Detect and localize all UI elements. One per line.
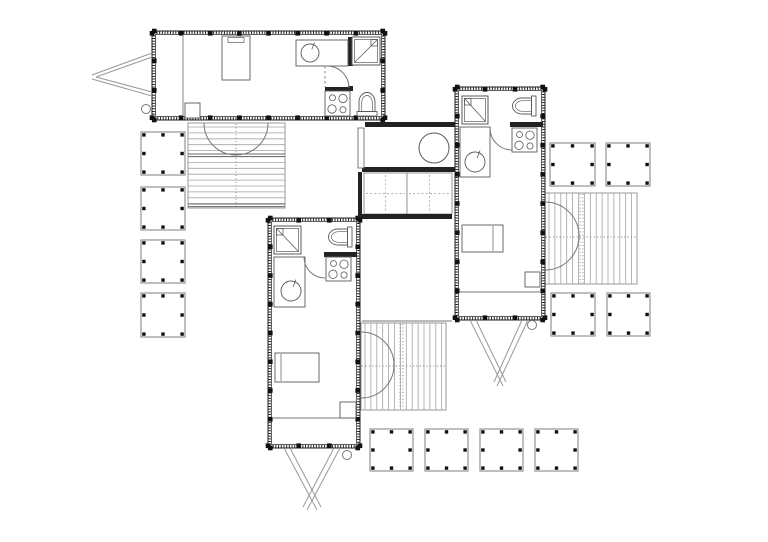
storage-box-top-unit <box>185 103 200 118</box>
floor-plan-svg <box>0 0 768 542</box>
foundation-pad <box>607 293 650 336</box>
foundation-pad <box>551 293 595 336</box>
stove-right-unit <box>512 128 537 152</box>
bed-right-unit <box>462 225 503 252</box>
foundation-pad <box>535 429 578 471</box>
foundation-pad <box>606 143 650 186</box>
foundation-pad <box>425 429 468 471</box>
storage-box-bottom-unit <box>340 402 356 418</box>
interior-wall <box>365 122 455 127</box>
kitchen-counter-bottom-unit <box>274 257 305 307</box>
interior-wall <box>358 172 362 218</box>
kitchen-counter-right-unit <box>460 127 490 177</box>
foundation-pad <box>550 143 595 186</box>
foundation-pad <box>370 429 413 471</box>
shower-right-unit <box>462 96 488 124</box>
bed-top-unit <box>222 36 250 80</box>
stove-top-unit <box>325 91 350 116</box>
foundation-pad <box>141 240 185 283</box>
interior-wall <box>324 252 357 257</box>
link-floor-panel <box>407 173 452 214</box>
link-floor-panel <box>364 173 407 214</box>
deck-top <box>188 123 285 208</box>
foundation-pad <box>480 429 523 471</box>
shower-bottom-unit <box>274 226 301 254</box>
stove-bottom-unit <box>326 257 351 281</box>
foundation-pad <box>141 132 185 175</box>
deck-right <box>545 193 637 284</box>
shower-top-unit <box>352 37 380 65</box>
foundation-pad <box>141 293 185 337</box>
deck-middle <box>361 323 446 410</box>
foundation-pad <box>141 187 185 230</box>
storage-box-right-unit <box>525 272 540 287</box>
interior-wall <box>362 214 452 219</box>
interior-wall <box>510 122 543 127</box>
floor-plan-canvas <box>0 0 768 542</box>
interior-wall <box>362 167 455 172</box>
round-table-link <box>419 133 449 163</box>
kitchen-counter-top-unit <box>296 40 348 66</box>
threshold-step <box>358 128 364 168</box>
bed-bottom-unit <box>275 353 319 382</box>
